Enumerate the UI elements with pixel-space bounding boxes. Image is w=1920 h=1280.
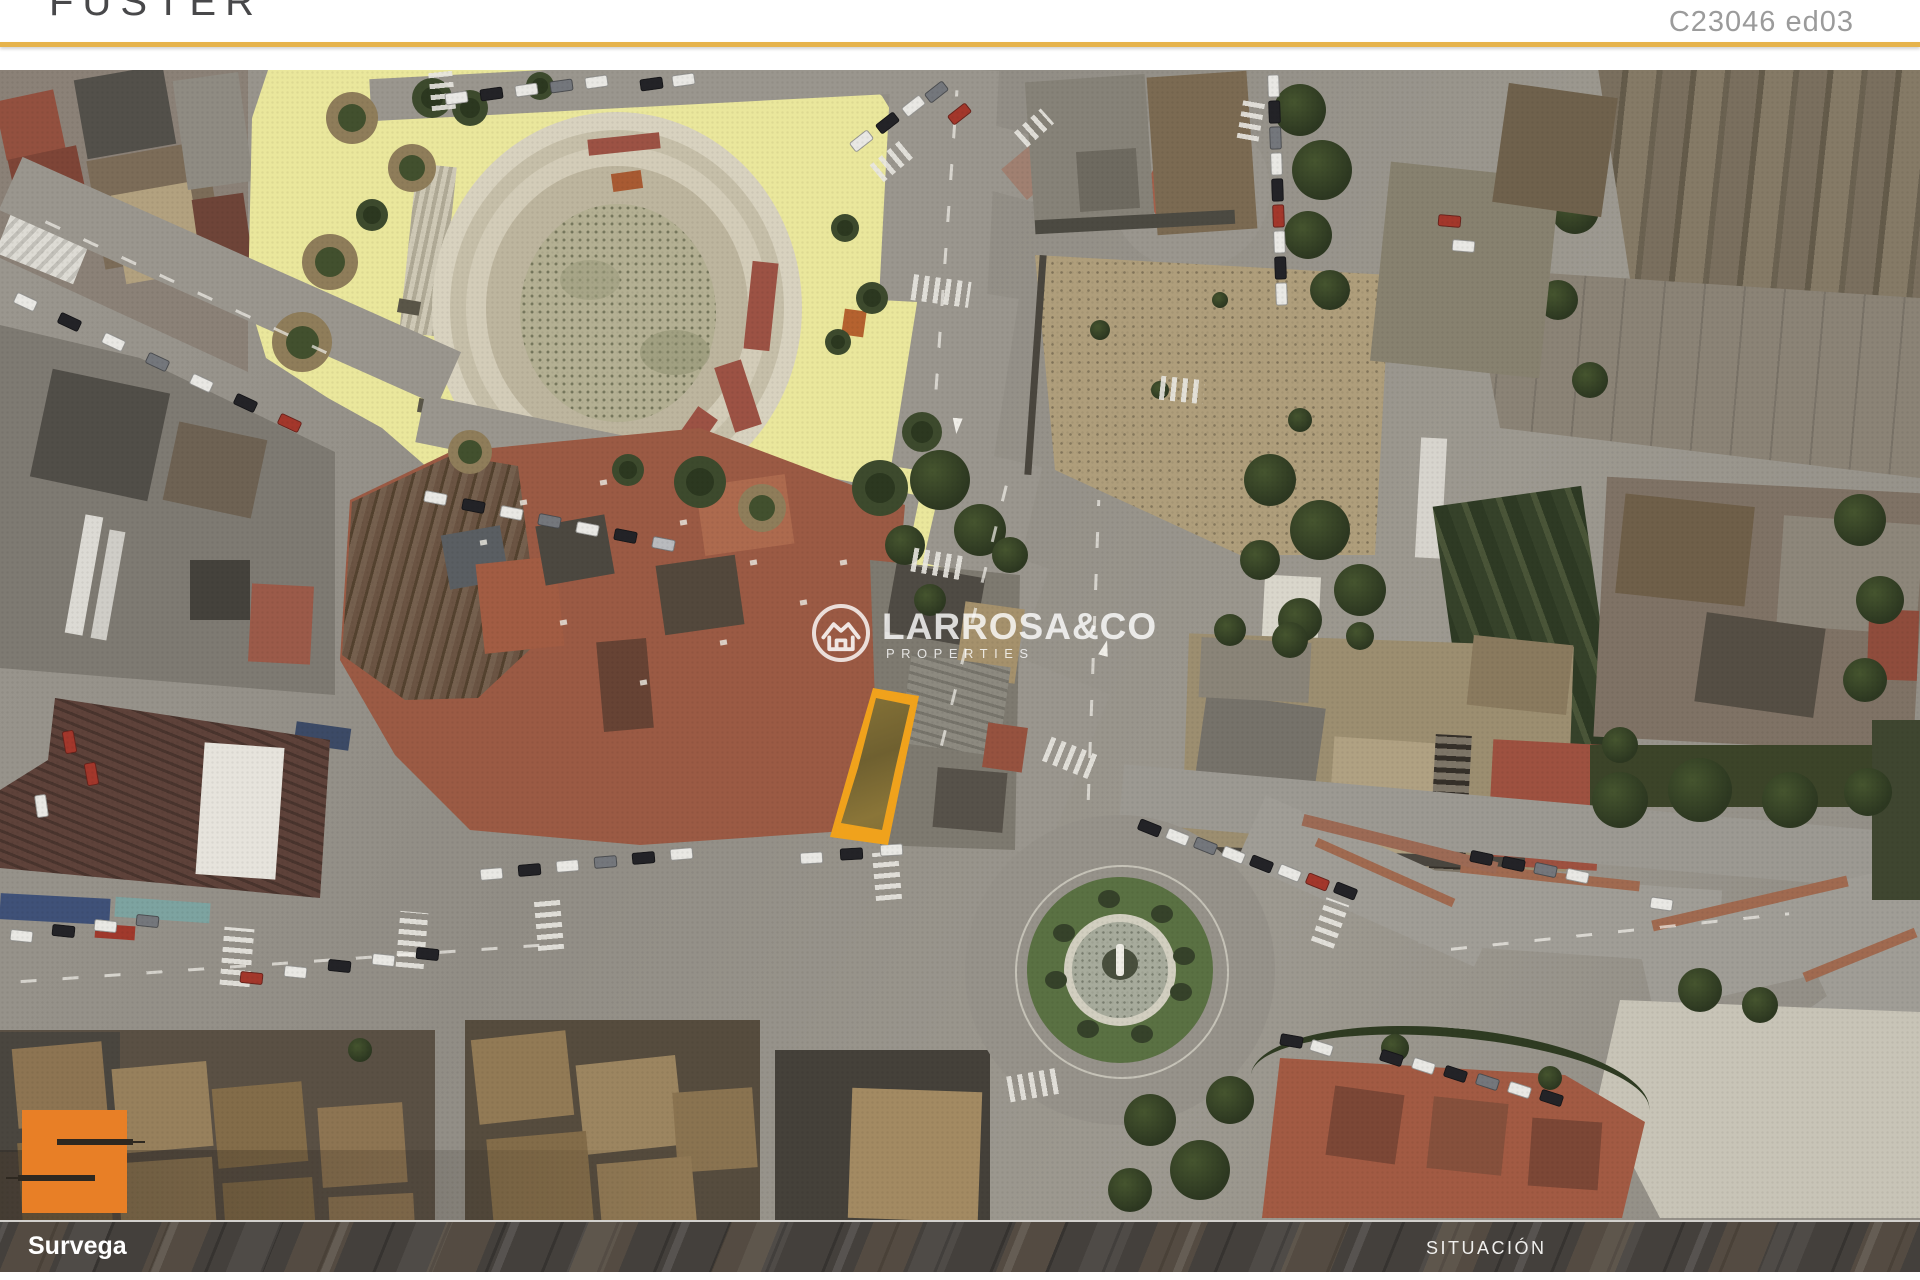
bush — [1045, 971, 1067, 989]
tree — [1108, 1168, 1152, 1212]
parked-car — [327, 959, 351, 973]
parked-car — [556, 859, 580, 873]
parked-car — [1273, 230, 1286, 253]
tree — [1334, 564, 1386, 616]
crosswalk — [396, 911, 429, 969]
parked-car — [800, 851, 824, 864]
tree — [1214, 614, 1246, 646]
planter-foliage — [837, 220, 852, 235]
survega-mark-bar — [18, 1175, 95, 1181]
tree — [1244, 454, 1296, 506]
tree — [1572, 362, 1608, 398]
parked-car — [135, 914, 159, 928]
arena-scrub — [560, 260, 620, 300]
tree — [1290, 500, 1350, 560]
tree — [1090, 320, 1110, 340]
bush — [1098, 890, 1120, 908]
tree — [1856, 576, 1904, 624]
tree — [1288, 408, 1312, 432]
footer-company-label: Survega — [28, 1232, 127, 1261]
roof — [933, 767, 1008, 833]
parked-car — [480, 867, 504, 881]
planter-foliage — [619, 461, 637, 479]
tree — [1602, 727, 1638, 763]
tree — [1292, 140, 1352, 200]
tree — [992, 537, 1028, 573]
bush — [1053, 924, 1075, 942]
parked-car — [1270, 152, 1283, 175]
parked-car — [1271, 178, 1284, 201]
parked-car — [93, 919, 117, 933]
arena-scrub — [640, 330, 710, 375]
tree — [1844, 768, 1892, 816]
roof — [982, 722, 1028, 772]
parked-car — [239, 971, 263, 985]
survega-mark-bar — [6, 1177, 18, 1179]
parked-car — [1438, 214, 1462, 228]
parked-car — [1452, 239, 1476, 253]
roof — [1694, 612, 1825, 718]
courtyard — [656, 555, 745, 635]
roof — [74, 70, 177, 159]
tree — [1272, 622, 1308, 658]
white-roof — [195, 742, 284, 879]
parked-car — [1274, 256, 1287, 279]
tree — [348, 1038, 372, 1062]
tree — [1346, 622, 1374, 650]
parked-car — [1267, 74, 1280, 97]
tree — [1240, 540, 1280, 580]
courtyard — [596, 638, 654, 732]
parked-car — [594, 855, 618, 869]
planter-foliage — [458, 440, 482, 464]
watermark-subtitle-text: PROPERTIES — [886, 646, 1035, 661]
parked-car — [283, 965, 307, 979]
tree — [1592, 772, 1648, 828]
crosswalk — [1311, 897, 1349, 948]
tree — [1284, 211, 1332, 259]
document-page: { "header": { "brand": "FUSTER", "refere… — [0, 0, 1920, 1280]
lane-dashes — [21, 944, 540, 983]
wall — [1024, 255, 1046, 475]
bush — [1170, 983, 1192, 1001]
survega-mark-s — [22, 1110, 127, 1213]
parked-car — [1275, 282, 1288, 305]
sheet-header: FUSTER C23046 ed03 — [0, 0, 1920, 70]
crosswalk — [1159, 376, 1205, 404]
parked-car — [670, 847, 694, 861]
tree — [1274, 84, 1326, 136]
watermark-house-icon — [812, 604, 870, 662]
parked-car — [415, 947, 439, 961]
footer-bar: Survega SITUACIÓN — [0, 1220, 1920, 1272]
bush — [1173, 947, 1195, 965]
tree — [1834, 494, 1886, 546]
courtyard — [190, 560, 250, 620]
parked-car — [101, 332, 127, 353]
tree — [1538, 1066, 1562, 1090]
parked-car — [518, 863, 542, 877]
tree — [1170, 1140, 1230, 1200]
tree — [1668, 758, 1732, 822]
tree — [1310, 270, 1350, 310]
footer-sheet-label: SITUACIÓN — [1426, 1238, 1547, 1259]
tree — [1678, 968, 1722, 1012]
survega-mark-bar — [57, 1139, 133, 1145]
parked-car — [57, 312, 83, 333]
bush — [1077, 1020, 1099, 1038]
bush — [1131, 1025, 1153, 1043]
bush — [1151, 905, 1173, 923]
gold-divider-line — [0, 42, 1920, 47]
arena-texture — [520, 204, 716, 422]
roof — [1076, 148, 1140, 212]
tree — [910, 450, 970, 510]
crosswalk — [428, 70, 456, 111]
roof-hip — [471, 1030, 574, 1124]
statue — [1116, 944, 1124, 976]
roof-hip — [576, 1055, 685, 1155]
planter-foliage — [363, 206, 381, 224]
parked-car — [1268, 100, 1281, 123]
parked-car — [13, 292, 39, 313]
roof — [1615, 493, 1755, 606]
roof — [248, 583, 314, 664]
canopy — [114, 897, 210, 924]
roof — [1467, 635, 1574, 715]
parked-car — [9, 929, 33, 943]
parked-car — [840, 847, 864, 860]
parked-car — [880, 843, 904, 856]
parked-car — [1269, 126, 1282, 149]
tree — [1124, 1094, 1176, 1146]
reference-code: C23046 ed03 — [1669, 6, 1854, 39]
roof — [1492, 83, 1618, 217]
parked-car — [371, 953, 395, 967]
tree — [1762, 772, 1818, 828]
tree — [1206, 1076, 1254, 1124]
brand-logo-text: FUSTER — [49, 0, 263, 17]
parked-car — [632, 851, 656, 865]
crosswalk — [872, 851, 902, 901]
watermark-brand-text: LARROSA&CO — [882, 606, 1157, 648]
tree — [1212, 292, 1228, 308]
parked-car — [1272, 204, 1285, 227]
planter-foliage — [863, 289, 881, 307]
parked-car — [51, 924, 75, 938]
tree — [1742, 987, 1778, 1023]
tree — [1843, 658, 1887, 702]
survega-mark-bar — [133, 1141, 145, 1143]
planter-foliage — [911, 421, 933, 443]
roof — [848, 1088, 982, 1220]
